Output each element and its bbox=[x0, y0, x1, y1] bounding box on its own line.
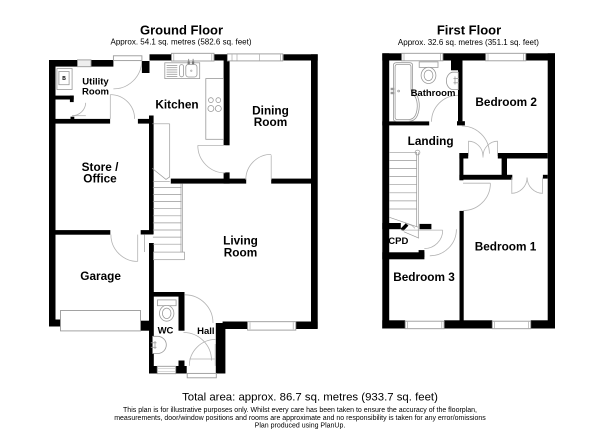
svg-text:measurements, door/window posi: measurements, door/window positions and … bbox=[114, 415, 486, 422]
svg-text:Plan produced using PlanUp.: Plan produced using PlanUp. bbox=[255, 423, 346, 430]
svg-text:Kitchen: Kitchen bbox=[155, 98, 198, 112]
svg-text:WC: WC bbox=[158, 326, 174, 337]
svg-text:B: B bbox=[62, 76, 66, 82]
svg-text:Bathroom: Bathroom bbox=[411, 88, 456, 99]
svg-text:Room: Room bbox=[82, 87, 109, 98]
svg-text:Room: Room bbox=[254, 115, 287, 129]
svg-text:Bedroom 3: Bedroom 3 bbox=[393, 270, 455, 284]
svg-text:Approx. 54.1 sq. metres (582.6: Approx. 54.1 sq. metres (582.6 sq. feet) bbox=[111, 38, 252, 47]
svg-text:Bedroom 1: Bedroom 1 bbox=[475, 240, 537, 254]
svg-text:Bedroom 2: Bedroom 2 bbox=[475, 95, 537, 109]
svg-text:Hall: Hall bbox=[197, 326, 214, 337]
svg-text:Room: Room bbox=[224, 245, 257, 259]
svg-text:First Floor: First Floor bbox=[437, 22, 501, 37]
svg-text:CPD: CPD bbox=[388, 236, 408, 247]
svg-text:Ground Floor: Ground Floor bbox=[140, 22, 223, 37]
svg-text:Total area: approx. 86.7 sq. m: Total area: approx. 86.7 sq. metres (933… bbox=[182, 392, 438, 404]
svg-text:Approx. 32.6 sq. metres (351.1: Approx. 32.6 sq. metres (351.1 sq. feet) bbox=[398, 38, 539, 47]
svg-text:Garage: Garage bbox=[80, 269, 121, 283]
svg-text:This plan is for illustrative: This plan is for illustrative purposes o… bbox=[123, 407, 477, 414]
svg-text:Office: Office bbox=[83, 171, 117, 185]
svg-text:Landing: Landing bbox=[408, 134, 454, 148]
